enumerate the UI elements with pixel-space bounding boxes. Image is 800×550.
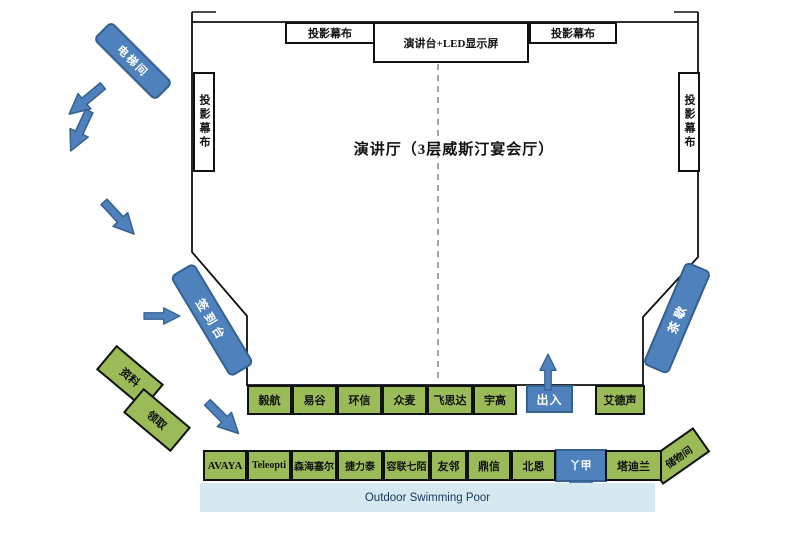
flow-arrow-1-icon (64, 88, 108, 112)
booth-label: 容联七陌 (387, 458, 427, 473)
booth-label: 捷力泰 (345, 458, 375, 473)
entry-up-arrow-icon (530, 356, 566, 388)
booth-row1-3: 众麦 (382, 385, 427, 415)
booth-label: Teleopti (252, 460, 286, 471)
booth-row1-0: 毅航 (247, 385, 292, 415)
pool-label: Outdoor Swimming Poor (365, 492, 490, 504)
booth-label: 易谷 (304, 392, 326, 408)
projection-screen-top-left: 投影幕布 (285, 22, 375, 44)
projection-screen-left-wall: 投影幕布 (193, 72, 215, 172)
booth-label: 宇高 (484, 392, 506, 408)
pickup-upper-label: 资料 (116, 364, 143, 390)
booth-label: 众麦 (394, 392, 416, 408)
flow-arrow-3-icon (97, 206, 141, 230)
screen-label: 投影幕布 (681, 94, 697, 150)
screen-label: 投影幕布 (196, 94, 212, 150)
projection-screen-top-right: 投影幕布 (529, 22, 617, 44)
booth-label: 塔迪兰 (617, 458, 650, 474)
flow-arrow-5-icon (201, 406, 245, 430)
booth-label: AVAYA (208, 460, 243, 472)
booth-label: 森海塞尔 (294, 458, 334, 473)
screen-label: 投影幕布 (551, 25, 595, 41)
booth-row2-5: 友邻 (430, 450, 467, 481)
booth-row2-6: 鼎信 (467, 450, 511, 481)
hall-title: 演讲厅（3层威斯汀宴会厅） (298, 138, 610, 159)
booth-label: 飞思达 (434, 392, 467, 408)
screen-label: 投影幕布 (308, 25, 352, 41)
podium-led-box: 演讲台+LED显示屏 (373, 22, 529, 63)
booth-label: 友邻 (438, 458, 460, 474)
flow-arrow-2-icon (58, 119, 102, 143)
booth-row2-7: 北恩 (511, 450, 556, 481)
podium-label: 演讲台+LED显示屏 (404, 35, 499, 51)
booth-row2-3: 捷力泰 (337, 450, 383, 481)
booth-label: 环信 (349, 392, 371, 408)
flow-arrow-4-icon (144, 304, 180, 328)
booth-row2-1: Teleopti (247, 450, 291, 481)
pool-exit-label: 丫甲 (556, 451, 605, 479)
booth-row1-1: 易谷 (292, 385, 337, 415)
booth-row1-2: 环信 (337, 385, 382, 415)
booth-row1-5: 宇高 (473, 385, 517, 415)
booth-label: 北恩 (523, 458, 545, 474)
booth-row2-2: 森海塞尔 (291, 450, 337, 481)
entry-exit-label: 出入 (536, 391, 562, 408)
projection-screen-right-wall: 投影幕布 (678, 72, 700, 172)
booth-label: 鼎信 (478, 458, 500, 474)
swimming-pool-band: Outdoor Swimming Poor (200, 483, 655, 512)
booth-row1-4: 飞思达 (427, 385, 473, 415)
floor-plan: 投影幕布 演讲台+LED显示屏 投影幕布 投影幕布 投影幕布 演讲厅（3层威斯汀… (0, 0, 800, 550)
booth-row1-right: 艾德声 (595, 385, 645, 415)
pickup-lower-label: 领取 (143, 407, 170, 433)
booth-row2-right: 塔迪兰 (605, 450, 662, 481)
booth-row2-0: AVAYA (203, 450, 247, 481)
booth-label: 艾德声 (604, 392, 637, 408)
booth-row2-4: 容联七陌 (383, 450, 430, 481)
booth-label: 毅航 (259, 392, 281, 408)
